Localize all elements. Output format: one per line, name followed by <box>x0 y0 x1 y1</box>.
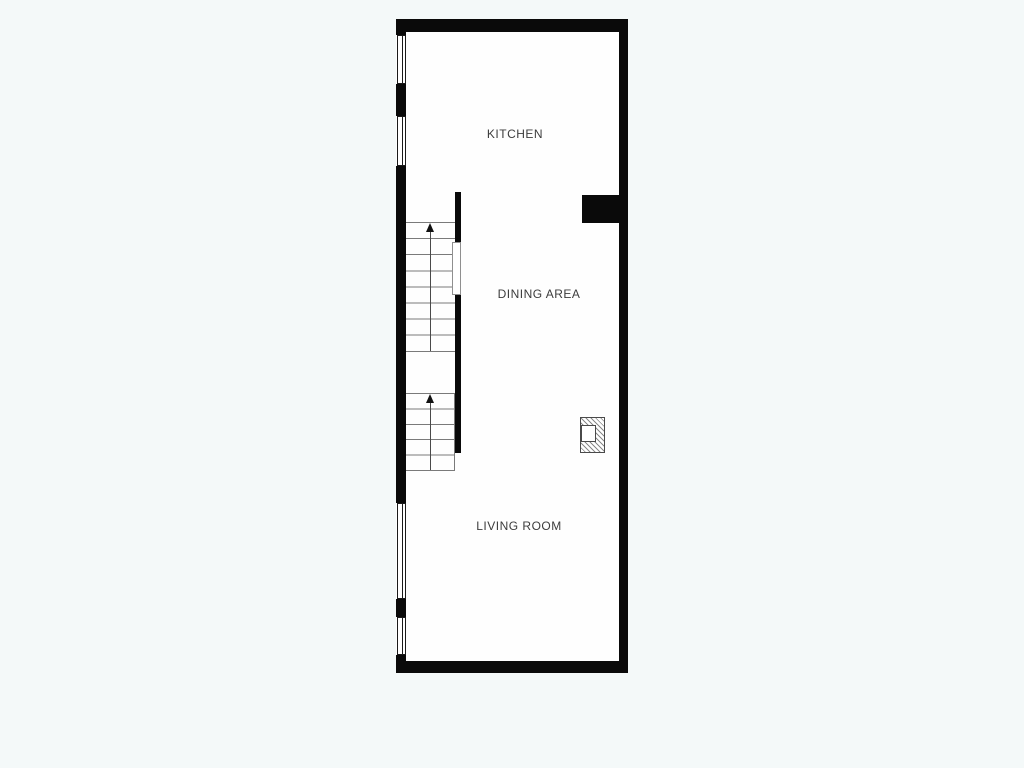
room-label-dining-area: DINING AREA <box>498 287 581 301</box>
wall-left-segment <box>396 599 406 617</box>
room-label-kitchen: KITCHEN <box>487 127 543 141</box>
window-icon <box>397 35 406 84</box>
wall-bottom <box>396 661 628 673</box>
window-icon <box>397 503 406 599</box>
window-icon <box>397 617 406 655</box>
stair-direction-line-lower <box>430 402 431 470</box>
wall-left-segment <box>396 84 406 116</box>
floor-plan-canvas: KITCHEN DINING AREA LIVING ROOM <box>0 0 1024 768</box>
interior-wall-opening <box>452 242 461 295</box>
wall-top <box>396 19 628 32</box>
fireplace-opening <box>581 425 596 442</box>
wall-left-segment <box>396 166 406 503</box>
wall-right <box>619 19 628 673</box>
wall-left-segment <box>396 655 406 673</box>
window-icon <box>397 116 406 166</box>
wall-left-segment <box>396 19 406 35</box>
room-label-living-room: LIVING ROOM <box>476 519 562 533</box>
stair-direction-line-upper <box>430 230 431 351</box>
stair-up-arrow-icon <box>426 223 434 232</box>
fireplace-symbol <box>580 417 605 453</box>
stair-up-arrow-icon <box>426 394 434 403</box>
wall-pier <box>582 195 620 223</box>
wall-interior-stair <box>455 192 461 453</box>
